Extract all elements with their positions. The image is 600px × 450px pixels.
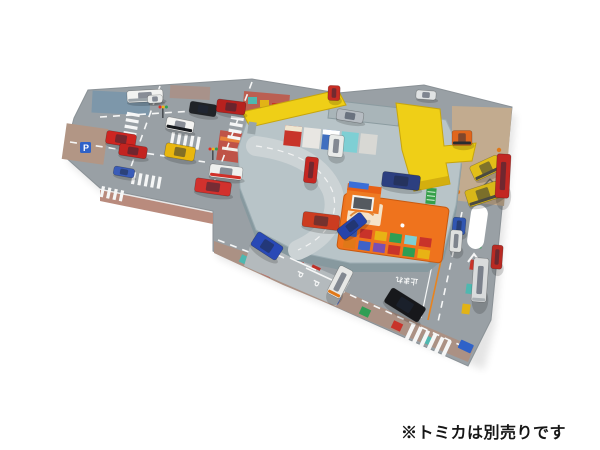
vehicle-orange-forklift — [452, 131, 475, 151]
vehicle-red-cab-top — [328, 85, 343, 105]
playset-scene: P P 60 止まれ P — [0, 0, 600, 450]
green-kiosk — [425, 188, 436, 205]
parking-sign-letter: P — [83, 143, 89, 153]
vehicle-red-bus-right — [490, 245, 505, 277]
product-photo: P P 60 止まれ P — [0, 0, 600, 450]
parking-sign: P — [80, 142, 91, 153]
vehicle-white-sedan-topleft — [147, 94, 165, 106]
disclaimer-caption: ※トミカは別売りです — [401, 419, 566, 443]
vehicle-red-ladder-truck — [494, 154, 513, 211]
